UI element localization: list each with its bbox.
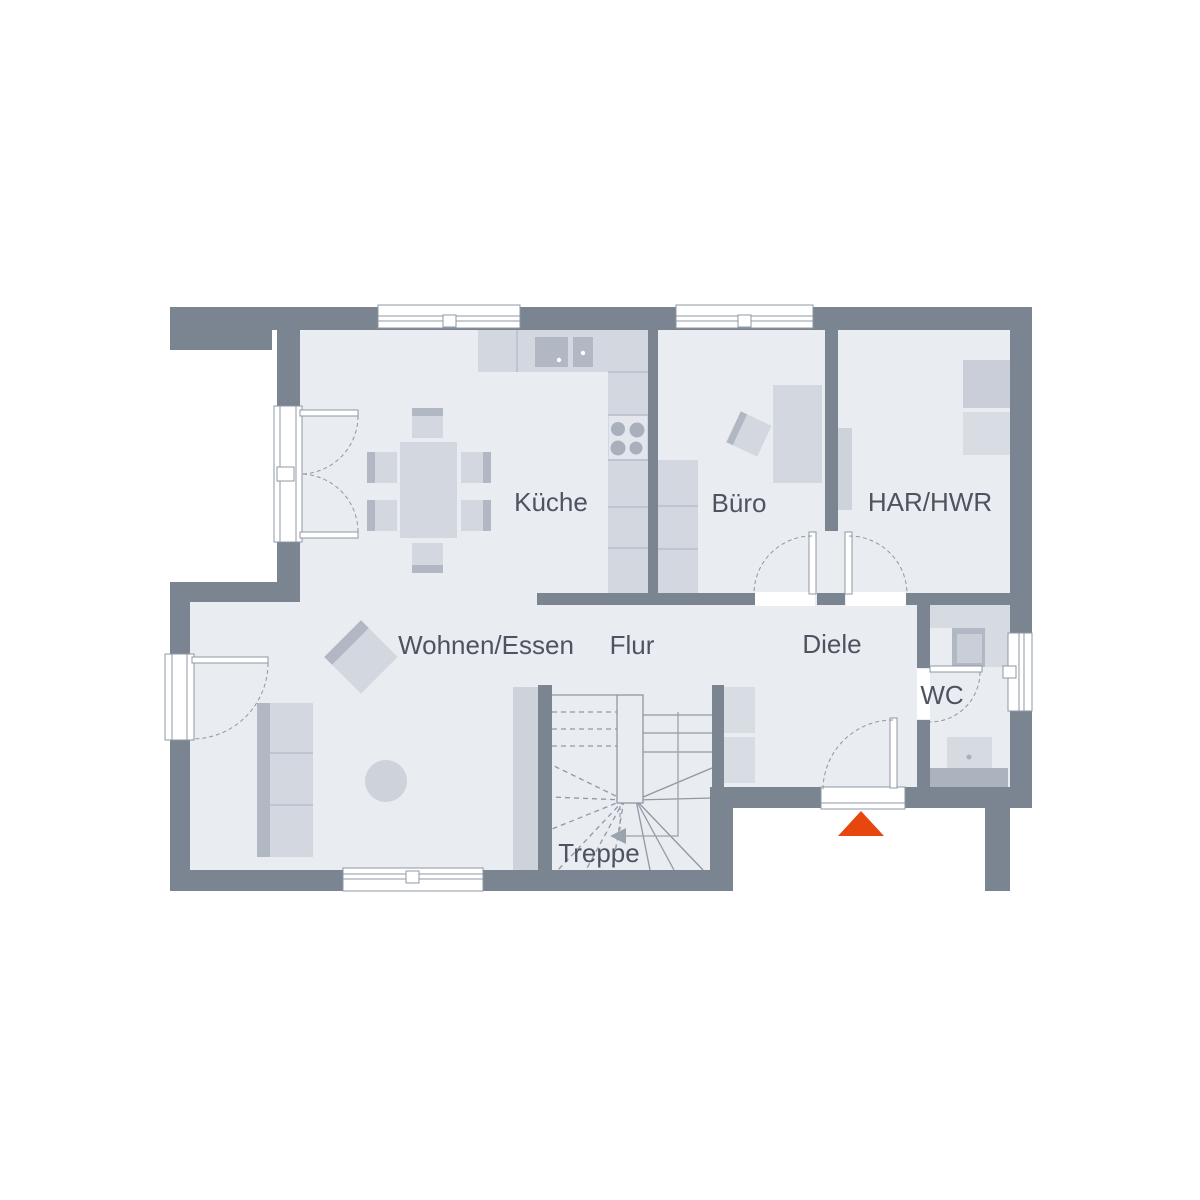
wall-wc-lower [917,720,930,787]
utility-appliance [963,412,1010,455]
wardrobe [723,687,755,733]
wall-east-stub [985,808,1010,891]
dining-table [400,442,457,538]
stove [609,416,647,459]
wall-east [1010,307,1032,787]
room-label-wc: WC [920,680,963,710]
sofa [257,703,313,857]
wall-kitchen-hall [537,593,755,605]
dining-chair [461,452,491,483]
wall-west-lower [170,602,190,891]
wall-notch [170,582,300,602]
wall-stair-left [538,685,552,871]
utility-appliance [963,360,1010,408]
window-south [343,868,483,891]
room-label-diele: Diele [802,629,861,659]
office-shelf [658,460,698,593]
outdoor-notch-left [170,330,277,582]
sideboard [513,687,538,870]
floor-plan-canvas: Küche Büro HAR/HWR Wohnen/Essen Flur Die… [0,0,1200,1200]
wall-door-stub [817,593,845,605]
wall-hall-wc [906,593,1010,605]
room-label-buero: Büro [712,488,767,518]
wall-office-utility [825,327,838,531]
wall-north [170,307,1032,330]
room-label-treppe: Treppe [558,838,639,868]
room-label-flur: Flur [610,630,655,660]
window-north-right [676,305,813,328]
desk [773,385,822,483]
coffee-table [365,760,407,802]
room-label-kueche: Küche [514,487,588,517]
room-label-wohnen-essen: Wohnen/Essen [398,630,574,660]
sink [535,337,568,367]
outdoor-notch-bottom-right [733,808,1010,890]
dining-chair [412,543,443,573]
dining-chair [412,408,443,438]
wall-stair-right [712,685,724,871]
utility-cabinet [838,428,852,510]
dining-chair [461,500,491,531]
wall-wc-upper [917,605,930,668]
stair-well [617,695,643,803]
dining-chair [367,452,397,483]
wall-kitchen-office [648,330,658,595]
floor-plan-page: Küche Büro HAR/HWR Wohnen/Essen Flur Die… [0,0,1200,1200]
dining-chair [367,500,397,531]
window-north-left [378,305,520,328]
wc-ledge [930,768,1008,787]
room-label-har-hwr: HAR/HWR [868,487,992,517]
toilet [947,737,992,768]
wall-northwest-block [170,307,272,350]
wardrobe [723,737,755,783]
